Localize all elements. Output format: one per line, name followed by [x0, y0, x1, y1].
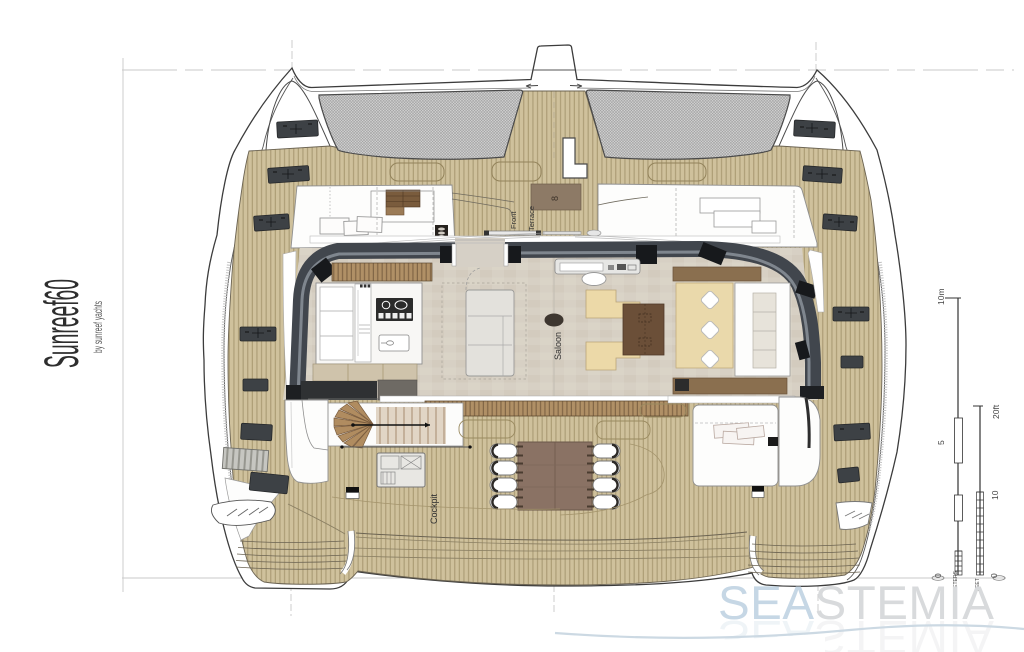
svg-text:Terrace: Terrace — [527, 206, 536, 231]
svg-text:by sunreef yachts: by sunreef yachts — [91, 301, 105, 353]
svg-text:Front: Front — [509, 211, 518, 229]
svg-text:Saloon: Saloon — [553, 332, 563, 360]
svg-text:10m: 10m — [936, 288, 946, 305]
svg-text:10: 10 — [990, 490, 1000, 500]
svg-text:Cockpit: Cockpit — [429, 493, 439, 524]
svg-text:Sunreef60: Sunreef60 — [36, 279, 89, 368]
svg-text:5: 5 — [936, 440, 946, 445]
svg-text:8: 8 — [550, 196, 560, 201]
svg-text:20ft: 20ft — [991, 404, 1001, 419]
